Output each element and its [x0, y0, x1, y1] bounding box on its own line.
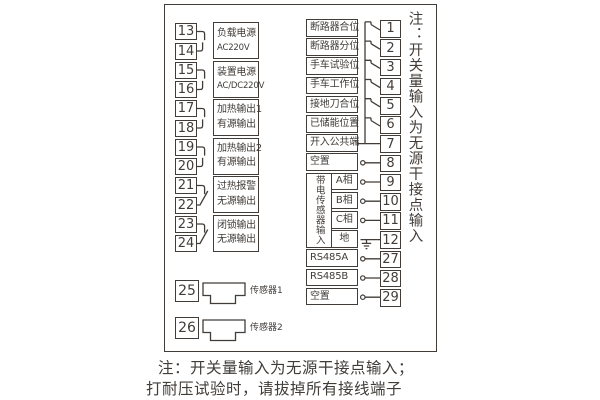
label-cell-phase-b: B相 — [331, 192, 358, 210]
label-box-spare-29: 空置 — [306, 288, 358, 306]
terminal-box-2: 2 — [380, 39, 401, 57]
terminal-box-12: 12 — [380, 231, 401, 249]
sensor-1-label: 传感器1 — [250, 287, 283, 296]
bottom-note-line-2: 打耐压试验时，请拔掉所有接线端子 — [146, 377, 402, 399]
bottom-note-line-1: 注：开关量输入为无源干接点输入； — [158, 356, 414, 378]
terminal-box-25: 25 — [175, 280, 199, 302]
left-contact-switch-icons — [197, 186, 208, 244]
terminal-box-22: 22 — [175, 197, 197, 214]
label-line: 负载电源 — [217, 27, 258, 42]
label-box-device-power: 装置电源 AC/DC220V — [213, 61, 259, 98]
terminal-box-29: 29 — [380, 289, 401, 307]
sensor-connector-icon — [203, 283, 245, 341]
terminal-box-23: 23 — [175, 216, 197, 233]
terminal-box-7: 7 — [380, 135, 401, 153]
dry-contact-switch-icons — [365, 22, 380, 126]
wiring-lines — [0, 0, 600, 400]
label-line: 过热报警 — [217, 180, 258, 195]
wiring-diagram-page: 13 14 15 16 17 18 19 20 21 22 23 24 负载电源… — [0, 0, 600, 400]
terminal-box-8: 8 — [380, 155, 401, 173]
sensor-2-label: 传感器2 — [250, 324, 283, 333]
terminal-box-10: 10 — [380, 193, 401, 211]
label-line: 加热输出2 — [217, 142, 258, 157]
terminal-box-24: 24 — [175, 235, 197, 252]
label-box-input-common: 开入公共端 — [306, 134, 358, 152]
label-box-load-power: 负载电源 AC220V — [213, 22, 259, 59]
terminal-box-18: 18 — [175, 120, 197, 137]
terminal-box-20: 20 — [175, 158, 197, 175]
label-box-breaker-open: 断路器分位 — [306, 38, 358, 56]
terminal-box-13: 13 — [175, 23, 197, 40]
terminal-box-4: 4 — [380, 78, 401, 96]
label-line: 无源输出 — [217, 233, 258, 248]
terminal-box-27: 27 — [380, 251, 401, 269]
label-box-cart-work-position: 手车工作位 — [306, 77, 358, 95]
label-cell-phase-c: C相 — [331, 211, 358, 229]
terminal-box-19: 19 — [175, 139, 197, 156]
label-box-live-sensor-input: 带电传感器输入 — [306, 173, 332, 248]
ground-icon — [361, 240, 381, 249]
terminal-box-3: 3 — [380, 59, 401, 77]
terminal-box-17: 17 — [175, 100, 197, 117]
label-box-overheat-alarm: 过热报警 无源输出 — [213, 176, 259, 213]
terminal-box-9: 9 — [380, 174, 401, 192]
label-line: AC/DC220V — [217, 80, 258, 92]
label-box-spare-8: 空置 — [306, 153, 358, 171]
label-box-rs485b: RS485B — [306, 269, 358, 287]
terminal-box-14: 14 — [175, 43, 197, 60]
label-box-cart-test-position: 手车试验位 — [306, 57, 358, 75]
label-box-ground-knife-closed: 接地刀合位 — [306, 96, 358, 114]
terminal-box-5: 5 — [380, 97, 401, 115]
terminal-box-28: 28 — [380, 270, 401, 288]
terminal-box-16: 16 — [175, 81, 197, 98]
terminal-box-26: 26 — [175, 317, 199, 339]
side-note-vertical: 注：开关量输入为无源干接点输入 — [407, 11, 422, 244]
dry-contact-common-bus — [358, 22, 380, 144]
label-box-heater-output-2: 加热输出2 有源输出 — [213, 138, 259, 175]
label-cell-ground: 地 — [331, 230, 358, 248]
label-line: 装置电源 — [217, 66, 258, 81]
left-pair-connector-icons — [197, 32, 205, 167]
label-line: 无源输出 — [217, 195, 258, 210]
label-box-breaker-closed: 断路器合位 — [306, 19, 358, 37]
label-line: 有源输出 — [217, 156, 258, 171]
terminal-box-11: 11 — [380, 212, 401, 230]
terminal-box-6: 6 — [380, 116, 401, 134]
label-box-lockout-output: 闭锁输出 无源输出 — [213, 215, 259, 252]
label-line: AC220V — [217, 42, 258, 54]
label-box-energy-stored: 已储能位置 — [306, 115, 358, 133]
terminal-box-15: 15 — [175, 62, 197, 79]
label-cell-phase-a: A相 — [331, 173, 358, 191]
label-box-rs485a: RS485A — [306, 249, 358, 267]
label-line: 闭锁输出 — [217, 219, 258, 234]
label-line: 加热输出1 — [217, 103, 258, 118]
label-line: 有源输出 — [217, 118, 258, 133]
wire-terminal-circle-icons — [361, 161, 380, 300]
label-box-heater-output-1: 加热输出1 有源输出 — [213, 99, 259, 136]
terminal-box-21: 21 — [175, 177, 197, 194]
terminal-box-1: 1 — [380, 20, 401, 38]
